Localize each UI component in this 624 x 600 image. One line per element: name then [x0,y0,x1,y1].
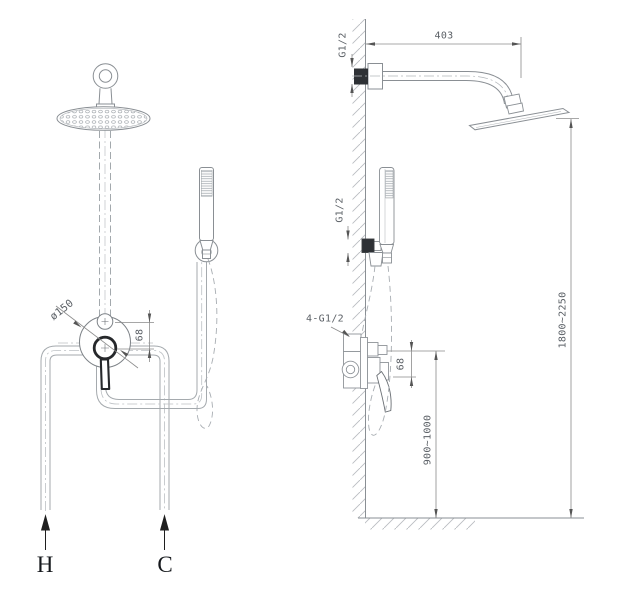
hot-cold-supply-arrows [42,516,169,550]
dim-arm-length-label: 403 [435,31,454,42]
mixer-handle-lever-side [377,372,391,413]
hand-shower-front [200,168,214,259]
hot-supply-label: H [37,552,54,578]
rain-shower-head-front [57,64,150,131]
hand-shower-side [362,168,394,267]
dimension-annotations [331,37,579,518]
dim-valve-thread-label: 4-G1/2 [306,314,344,325]
floor-section [358,518,584,530]
mixer-valve-front [58,314,153,389]
dim-mixer-height-label: 900~1000 [423,415,434,466]
drawing-linework [0,0,624,600]
dim-head-height-label: 1800~2250 [558,292,569,349]
leader-valve-thread [331,327,349,336]
mixer-handle-lever [101,360,109,390]
mixer-valve-side [342,334,391,412]
wall-bracket-fitting [362,239,374,253]
concealed-riser-pipe [100,128,111,332]
cold-supply-label: C [157,552,172,578]
wall-anchor-fitting [354,69,368,85]
wall-section [353,19,366,518]
dim-holder-thread-label: G1/2 [335,197,346,222]
shower-system-installation-drawing: 403 G1/2 G1/2 4-G1/2 68 900~1000 1800~22… [0,0,624,600]
dim-port-offset-front-label: 68 [135,329,146,342]
dim-port-offset-side-label: 68 [396,358,407,371]
shower-arm-side [352,64,524,115]
side-view [331,19,584,530]
dim-arm-thread-label: G1/2 [338,32,349,57]
